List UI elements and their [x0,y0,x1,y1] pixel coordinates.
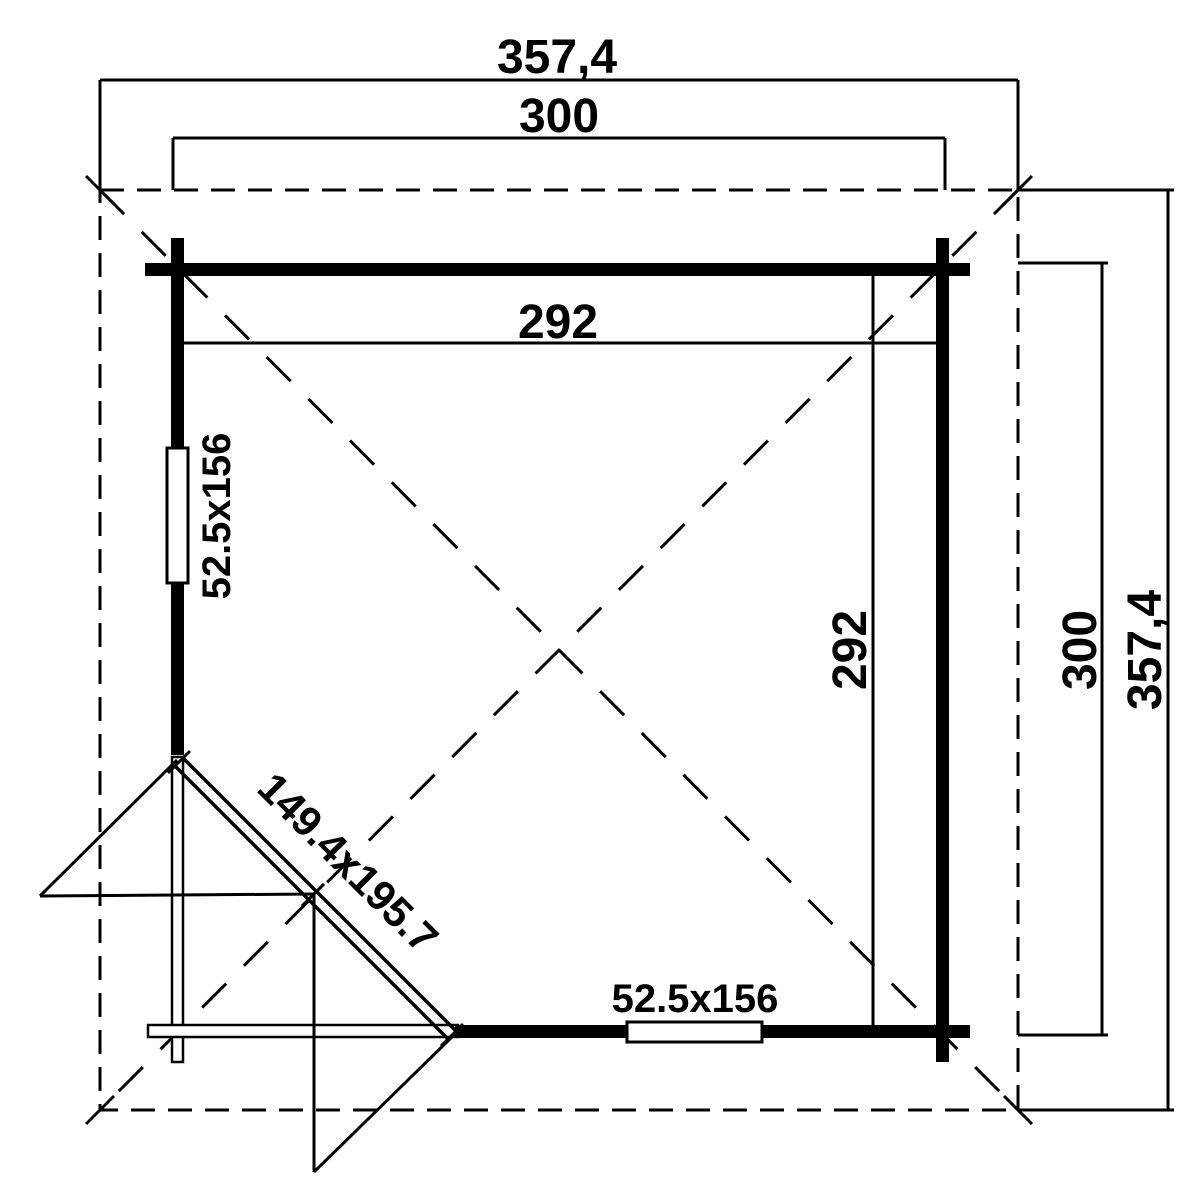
wall-top [145,263,970,276]
dim-roof-depth-right: 357,4 [1119,590,1172,710]
dim-inner-width: 292 [518,296,598,349]
dim-outer-depth-right: 300 [1054,610,1107,690]
floor-plan-drawing: 357,4 300 292 52.5x156 149.4x195.7 52.5x… [0,0,1200,1200]
dim-inner-depth: 292 [824,610,877,690]
dim-outer-width-top: 300 [519,90,599,143]
door-jamb-strip-left [172,757,183,1062]
label-left-window: 52.5x156 [195,433,239,600]
wall-right [936,238,949,1062]
dim-roof-width-top: 357,4 [497,31,617,84]
label-bottom-window: 52.5x156 [612,977,779,1021]
floor-plan-canvas: 357,4 300 292 52.5x156 149.4x195.7 52.5x… [0,0,1200,1200]
window-bottom [627,1022,762,1042]
window-left [167,448,188,583]
door-sill-strip-bottom [148,1025,458,1037]
